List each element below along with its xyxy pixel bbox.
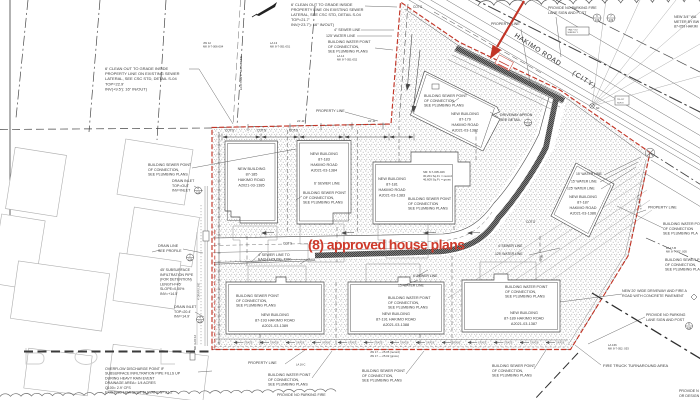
svg-text:NEW BUILDING87-187HAKIMO ROADA: NEW BUILDING87-187HAKIMO ROADA2021-03-13… (569, 195, 597, 216)
svg-text:SUR 8: SUR 8 (617, 102, 624, 104)
svg-text:GRADE: GRADE (530, 342, 539, 345)
svg-text:GRADE: GRADE (322, 342, 331, 345)
svg-text:4' DRAIN LINE: 4' DRAIN LINE (197, 283, 201, 300)
svg-text:COTG: COTG (413, 5, 423, 9)
svg-text:GRADE: GRADE (270, 342, 279, 345)
svg-text:6' SEWER LINE: 6' SEWER LINE (314, 182, 340, 186)
svg-text:139: 139 (188, 257, 193, 261)
svg-text:139: 139 (526, 122, 531, 126)
svg-text:15' WATER LINE: 15' WATER LINE (398, 284, 424, 288)
svg-text:GRADE: GRADE (426, 342, 435, 345)
svg-text:4' SEWER LINE TOEACH HOUSE, TY: 4' SEWER LINE TOEACH HOUSE, TYP (258, 253, 291, 262)
svg-text:NEW BUILDING87-185HAKIMO ROADA: NEW BUILDING87-185HAKIMO ROADA2021-03-13… (238, 167, 266, 188)
svg-text:139: 139 (196, 190, 201, 194)
svg-text:PROPERTY LINE: PROPERTY LINE (316, 109, 345, 113)
svg-text:24'-11": 24'-11" (368, 119, 376, 123)
svg-text:139: 139 (609, 18, 614, 22)
svg-text:GRADE: GRADE (556, 342, 565, 345)
svg-text:TR 417: TR 417 (617, 99, 625, 101)
svg-text:6' SEWER LINE: 6' SEWER LINE (413, 274, 438, 278)
svg-text:4" SEWER LINE: 4" SEWER LINE (334, 28, 361, 32)
svg-text:NEW BUILDING87-181HAKIMO ROADA: NEW BUILDING87-181HAKIMO ROADA2021-03-13… (378, 177, 406, 198)
svg-text:JW 17 — 25.05 (record)JW 17: JW 17 — 25.05 (record)JW 17 — 25.02 (gro… (370, 350, 400, 358)
svg-text:TRA 7 GUSURVEY 1: TRA 7 GUSURVEY 1 (568, 28, 580, 34)
svg-text:LA 16-C: LA 16-C (296, 363, 305, 367)
svg-text:GRADE: GRADE (478, 342, 487, 345)
svg-text:GRADE: GRADE (452, 342, 461, 345)
svg-text:GRADE: GRADE (374, 342, 383, 345)
svg-text:COTG: COTG (257, 129, 267, 133)
svg-text:PROVIDE NO PARKINGLANE SIGN AN: PROVIDE NO PARKINGLANE SIGN AND POST (646, 313, 686, 322)
svg-text:24'-11": 24'-11" (297, 119, 305, 123)
svg-text:4' SEWER LINE: 4' SEWER LINE (498, 244, 523, 248)
svg-text:FIRE TRUCK TURNAROUND AREA: FIRE TRUCK TURNAROUND AREA (603, 363, 669, 368)
svg-text:PROPERTY LINE: PROPERTY LINE (248, 361, 277, 365)
svg-text:BUILDING SEWER POF CONNECTION,: BUILDING SEWER POF CONNECTION,SEE PLUMBI… (665, 258, 700, 272)
svg-text:COTG: COTG (526, 220, 536, 224)
svg-text:125' WATER LINE: 125' WATER LINE (326, 34, 356, 38)
svg-text:GRADE: GRADE (400, 342, 409, 345)
svg-text:PROPERTY LINE: PROPERTY LINE (648, 206, 677, 210)
svg-text:COTG: COTG (225, 129, 235, 133)
svg-text:15' WATER LINE: 15' WATER LINE (576, 172, 602, 176)
svg-text:6d: 6d (596, 106, 600, 110)
svg-text:PROVIDE NO PARKING FIRE: PROVIDE NO PARKING FIRE (277, 393, 326, 397)
svg-text:EXISTING 8" SEWER LINE: EXISTING 8" SEWER LINE (239, 55, 243, 90)
svg-text:(8) approved house plans: (8) approved house plans (308, 237, 465, 253)
svg-text:GRADE: GRADE (296, 342, 305, 345)
svg-text:GRADE: GRADE (504, 342, 513, 345)
svg-text:125' WATER LINE: 125' WATER LINE (567, 187, 595, 191)
svg-text:NEW BUILDING87-183HAKIMO ROADA: NEW BUILDING87-183HAKIMO ROADA2021-03-13… (310, 152, 338, 173)
svg-text:125' WATER LINE: 125' WATER LINE (495, 252, 523, 256)
svg-text:139: 139 (595, 18, 600, 22)
svg-text:NEW BUILDING87-179HAKIMO ROADA: NEW BUILDING87-179HAKIMO ROADA2021-03-13… (451, 112, 479, 133)
svg-text:GRADE: GRADE (348, 342, 357, 345)
svg-text:NEW 3/4" WAMETER BY BW87-059 H: NEW 3/4" WAMETER BY BW87-059 HAKIM (674, 15, 700, 29)
svg-text:15' WATER LINE: 15' WATER LINE (571, 180, 597, 184)
svg-text:139: 139 (198, 319, 203, 323)
svg-text:139: 139 (687, 326, 692, 330)
svg-text:COTG: COTG (283, 242, 293, 246)
svg-text:PROPERTY LINE: PROPERTY LINE (491, 22, 520, 26)
svg-text:PROVIDE NOR DESIGN: PROVIDE NOR DESIGN (679, 389, 700, 398)
svg-text:MK 4+00 16: MK 4+00 16 (193, 334, 197, 350)
svg-text:NEW 20' WIDE DRIVEWAY AND FIRE: NEW 20' WIDE DRIVEWAY AND FIRE AROAD WIT… (622, 289, 688, 298)
svg-text:GRADE: GRADE (244, 342, 253, 345)
svg-text:COTG: COTG (289, 129, 299, 133)
